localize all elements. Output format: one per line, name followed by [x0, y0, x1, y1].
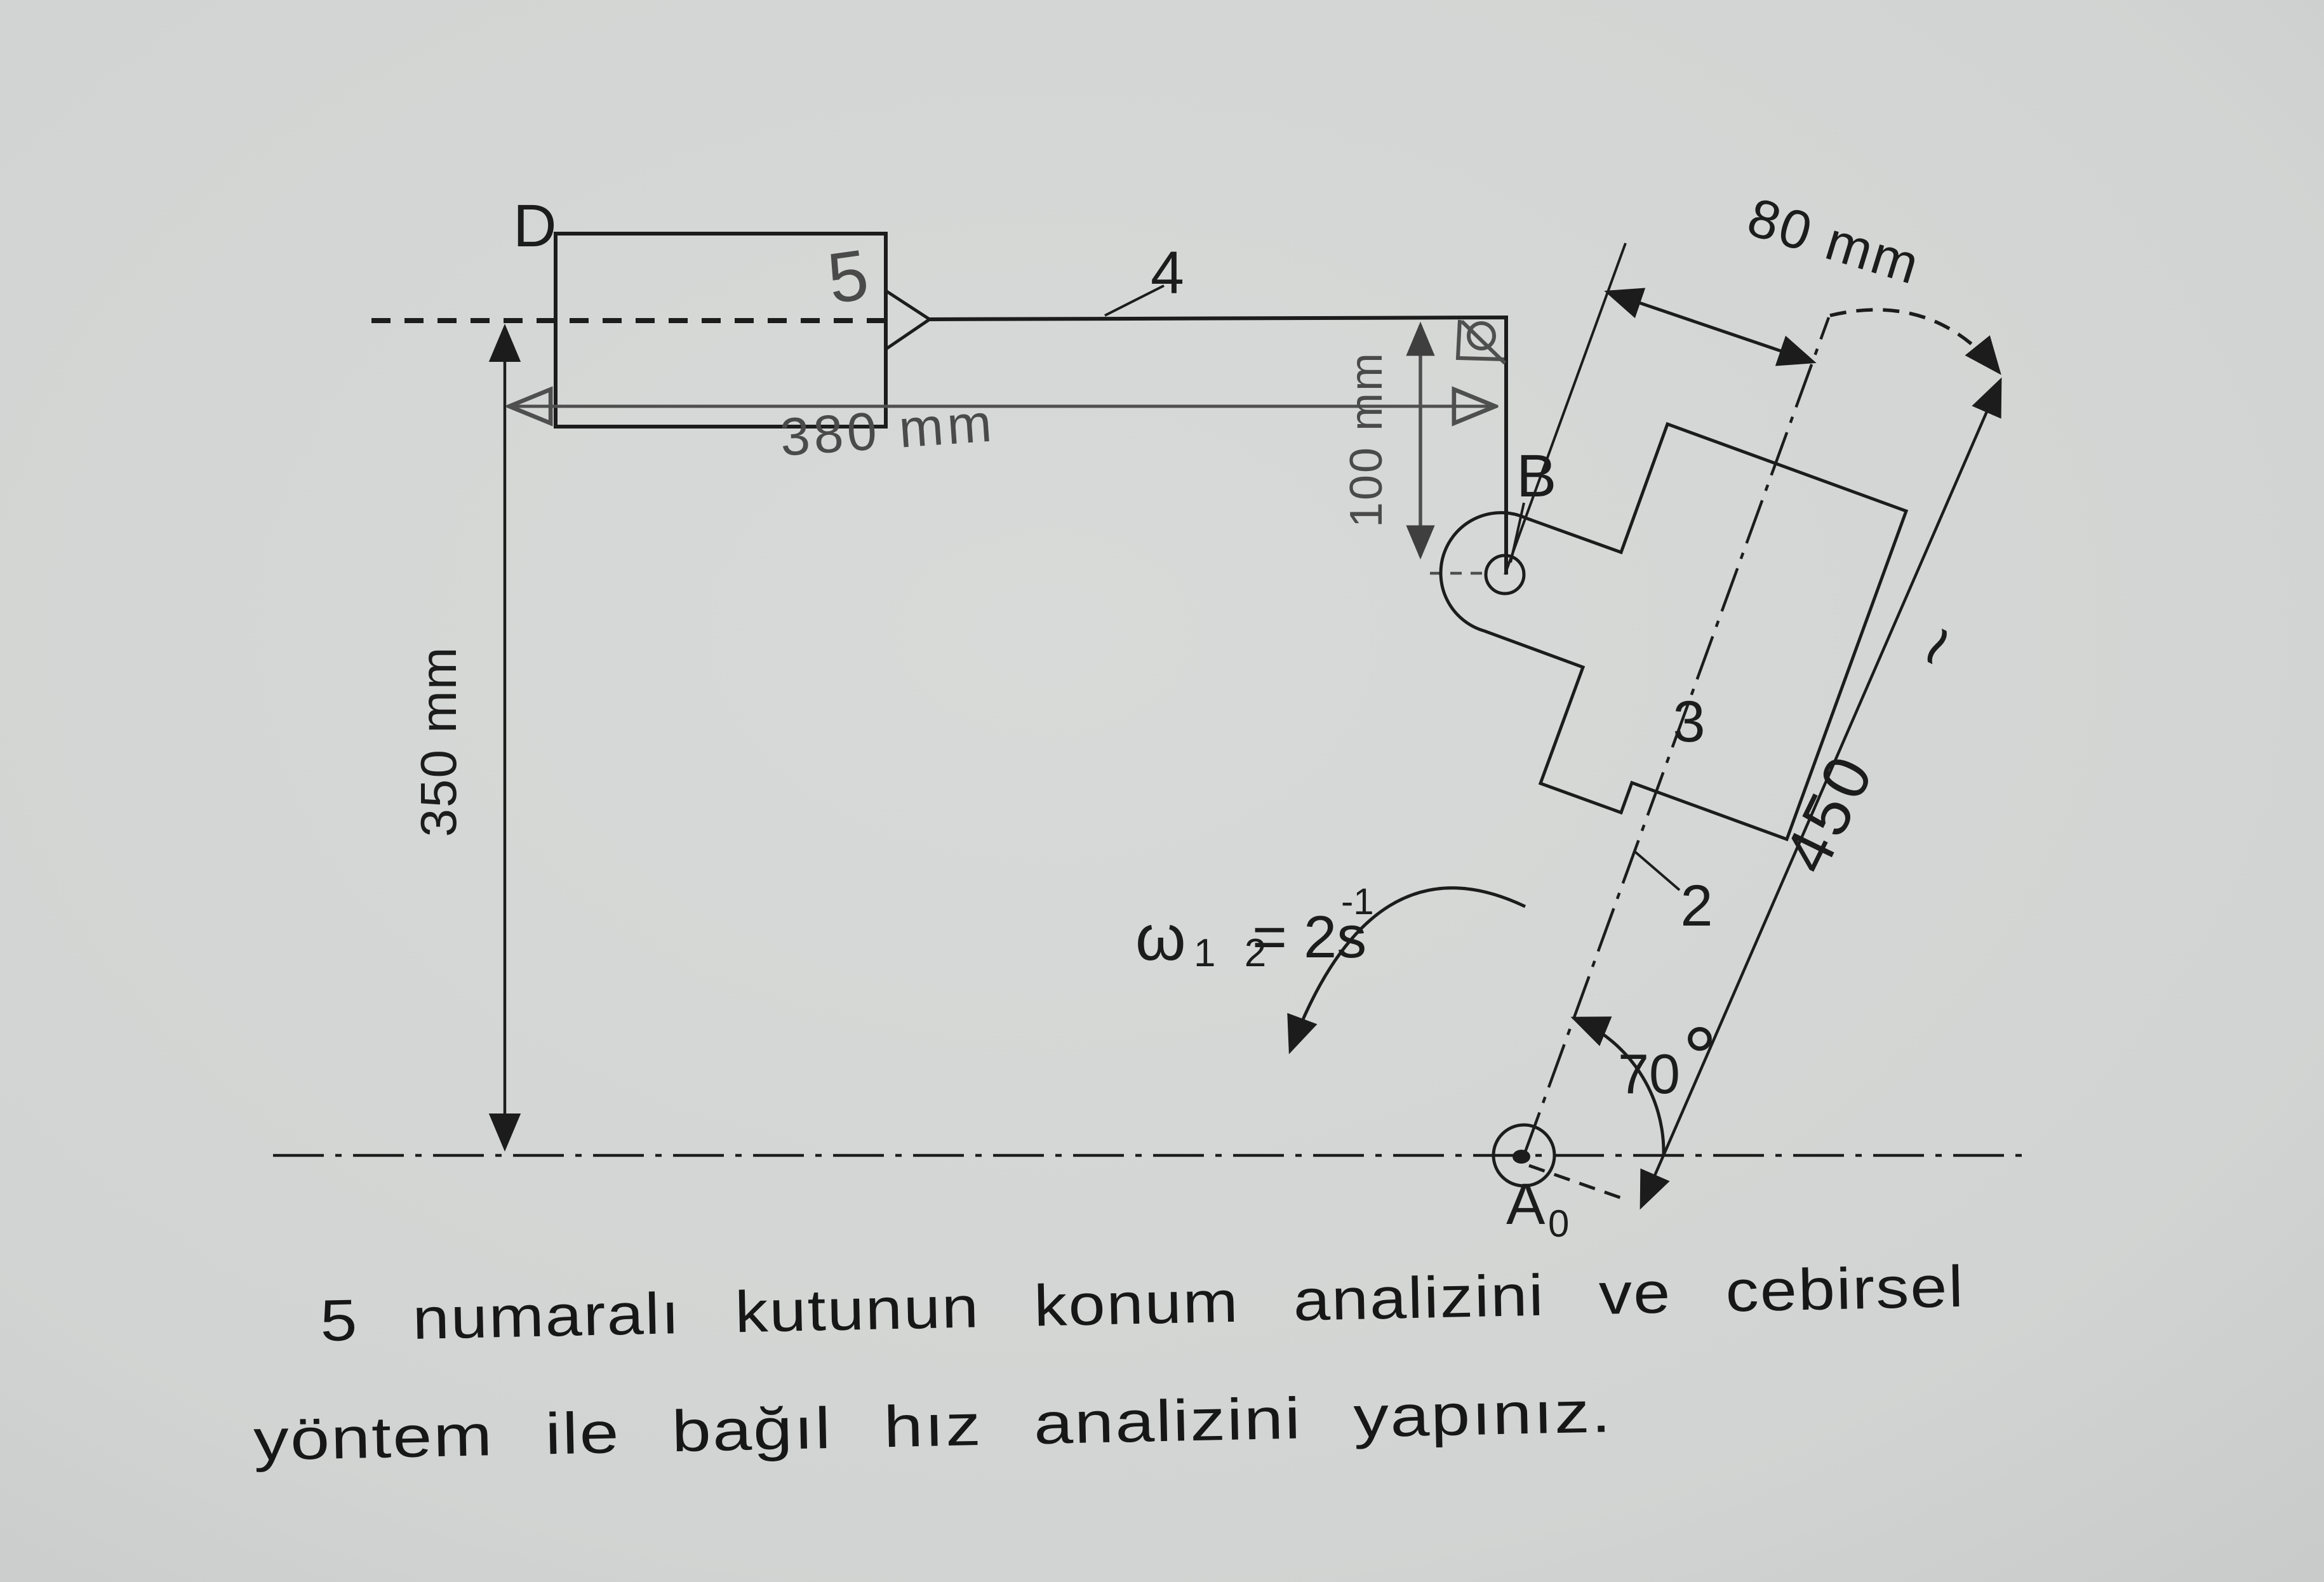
link-2-number-label: 2	[1680, 874, 1713, 938]
omega-exponent: -1	[1341, 881, 1374, 922]
link-4-number-label: 4	[1151, 239, 1184, 307]
block-3-number-label: 3	[1673, 689, 1705, 754]
angle-70-degree-symbol: °	[1683, 1009, 1717, 1105]
omega-symbol: ω	[1135, 901, 1186, 974]
pivot-label-a: A	[1506, 1172, 1546, 1237]
point-label-b: B	[1516, 442, 1556, 510]
dim-text-350mm: 350 mm	[410, 646, 467, 837]
mechanism-figure: D 5 4 B 3 2 A 0 350 mm 380 mm 100 mm 80 …	[0, 0, 2324, 1582]
angle-70-value: 70	[1618, 1042, 1680, 1105]
photographed-exam-page: D 5 4 B 3 2 A 0 350 mm 380 mm 100 mm 80 …	[0, 0, 2324, 1582]
dim-text-100mm: 100 mm	[1341, 351, 1392, 528]
pivot-label-a-subscript: 0	[1548, 1202, 1569, 1245]
point-label-d: D	[513, 192, 557, 260]
pivot-a0-center-dot	[1513, 1150, 1530, 1164]
